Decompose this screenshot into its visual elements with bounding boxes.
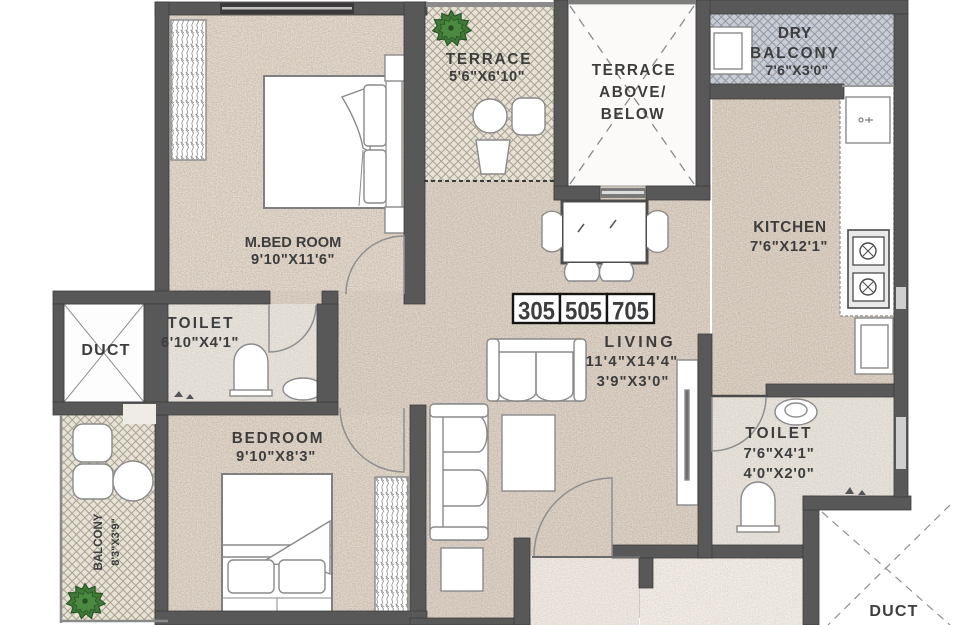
- svg-text:7'6"X4'1": 7'6"X4'1": [743, 446, 814, 462]
- svg-text:LIVING: LIVING: [604, 334, 675, 351]
- svg-text:DUCT: DUCT: [869, 603, 918, 620]
- svg-text:TERRACE: TERRACE: [446, 51, 533, 68]
- svg-text:DUCT: DUCT: [81, 342, 130, 359]
- svg-text:BALCONY: BALCONY: [93, 513, 105, 570]
- svg-text:ABOVE/: ABOVE/: [599, 84, 667, 101]
- svg-text:M.BED ROOM: M.BED ROOM: [245, 235, 341, 251]
- svg-text:9'10"X8'3": 9'10"X8'3": [236, 449, 316, 465]
- svg-text:BALCONY: BALCONY: [750, 45, 840, 62]
- svg-text:KITCHEN: KITCHEN: [753, 219, 827, 236]
- svg-text:DRY: DRY: [778, 25, 812, 42]
- svg-text:705: 705: [612, 298, 649, 326]
- svg-text:7'6"X12'1": 7'6"X12'1": [750, 239, 828, 255]
- svg-text:TOILET: TOILET: [745, 425, 812, 442]
- svg-text:505: 505: [565, 298, 602, 326]
- svg-text:5'6"X6'10": 5'6"X6'10": [449, 69, 525, 85]
- svg-text:TOILET: TOILET: [167, 315, 234, 332]
- svg-text:8'3"X3'9": 8'3"X3'9": [110, 518, 122, 565]
- svg-text:11'4"X14'4": 11'4"X14'4": [586, 354, 679, 370]
- svg-text:9'10"X11'6": 9'10"X11'6": [251, 252, 335, 268]
- svg-text:4'0"X2'0": 4'0"X2'0": [743, 466, 814, 482]
- svg-text:BELOW: BELOW: [601, 106, 665, 123]
- svg-text:305: 305: [518, 298, 555, 326]
- svg-text:6'10"X4'1": 6'10"X4'1": [161, 335, 239, 351]
- svg-text:BEDROOM: BEDROOM: [232, 430, 324, 447]
- svg-text:TERRACE: TERRACE: [592, 62, 676, 79]
- svg-text:7'6"X3'0": 7'6"X3'0": [765, 62, 828, 78]
- svg-text:3'9"X3'0": 3'9"X3'0": [597, 374, 670, 390]
